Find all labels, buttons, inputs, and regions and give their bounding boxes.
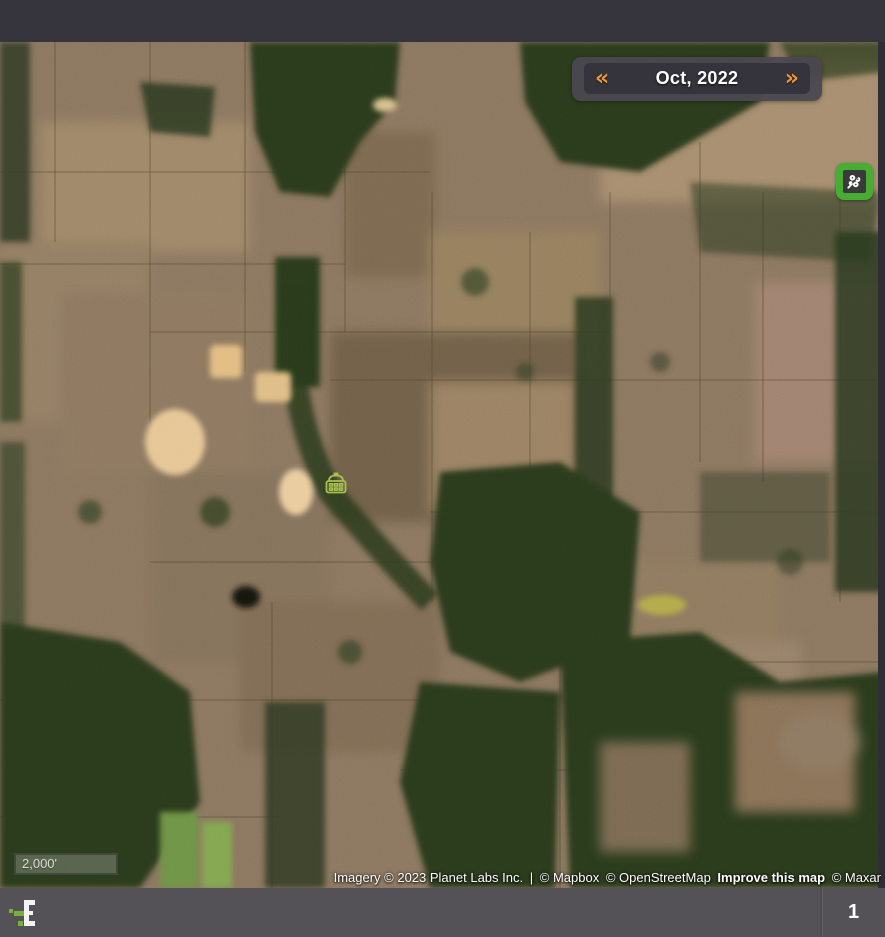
vegetation-tool-button[interactable] (836, 163, 873, 200)
attribution-mapbox-link[interactable]: © Mapbox (540, 870, 599, 885)
flower-icon (843, 170, 866, 193)
bottom-bar: 1 (0, 888, 885, 937)
attribution-divider: | (530, 870, 533, 885)
attribution-maxar-link[interactable]: © Maxar (832, 870, 881, 885)
improve-this-map-link[interactable]: Improve this map (717, 870, 825, 885)
prev-month-button[interactable]: « (593, 68, 611, 90)
farm-marker-icon[interactable] (322, 470, 350, 496)
satellite-imagery[interactable] (0, 42, 885, 888)
app-logo[interactable] (9, 898, 39, 928)
date-navigator: « Oct, 2022 » (572, 57, 822, 101)
current-date-label: Oct, 2022 (656, 68, 739, 89)
chevron-left-icon: « (595, 66, 609, 91)
map-viewport[interactable]: « Oct, 2022 » (0, 42, 885, 888)
satellite-viewer-app: « Oct, 2022 » (0, 0, 885, 937)
attribution-osm-link[interactable]: © OpenStreetMap (606, 870, 711, 885)
next-month-button[interactable]: » (783, 68, 801, 90)
attribution-imagery: Imagery © 2023 Planet Labs Inc. (334, 870, 524, 885)
top-bar (0, 0, 885, 42)
scale-label: 2,000' (22, 856, 57, 871)
map-scale-bar: 2,000' (14, 853, 118, 875)
right-panel-strip (878, 42, 885, 888)
map-attribution: Imagery © 2023 Planet Labs Inc. | © Mapb… (331, 870, 881, 885)
page-number: 1 (822, 888, 885, 937)
date-navigator-inner: « Oct, 2022 » (584, 63, 810, 94)
chevron-right-icon: » (785, 66, 799, 91)
